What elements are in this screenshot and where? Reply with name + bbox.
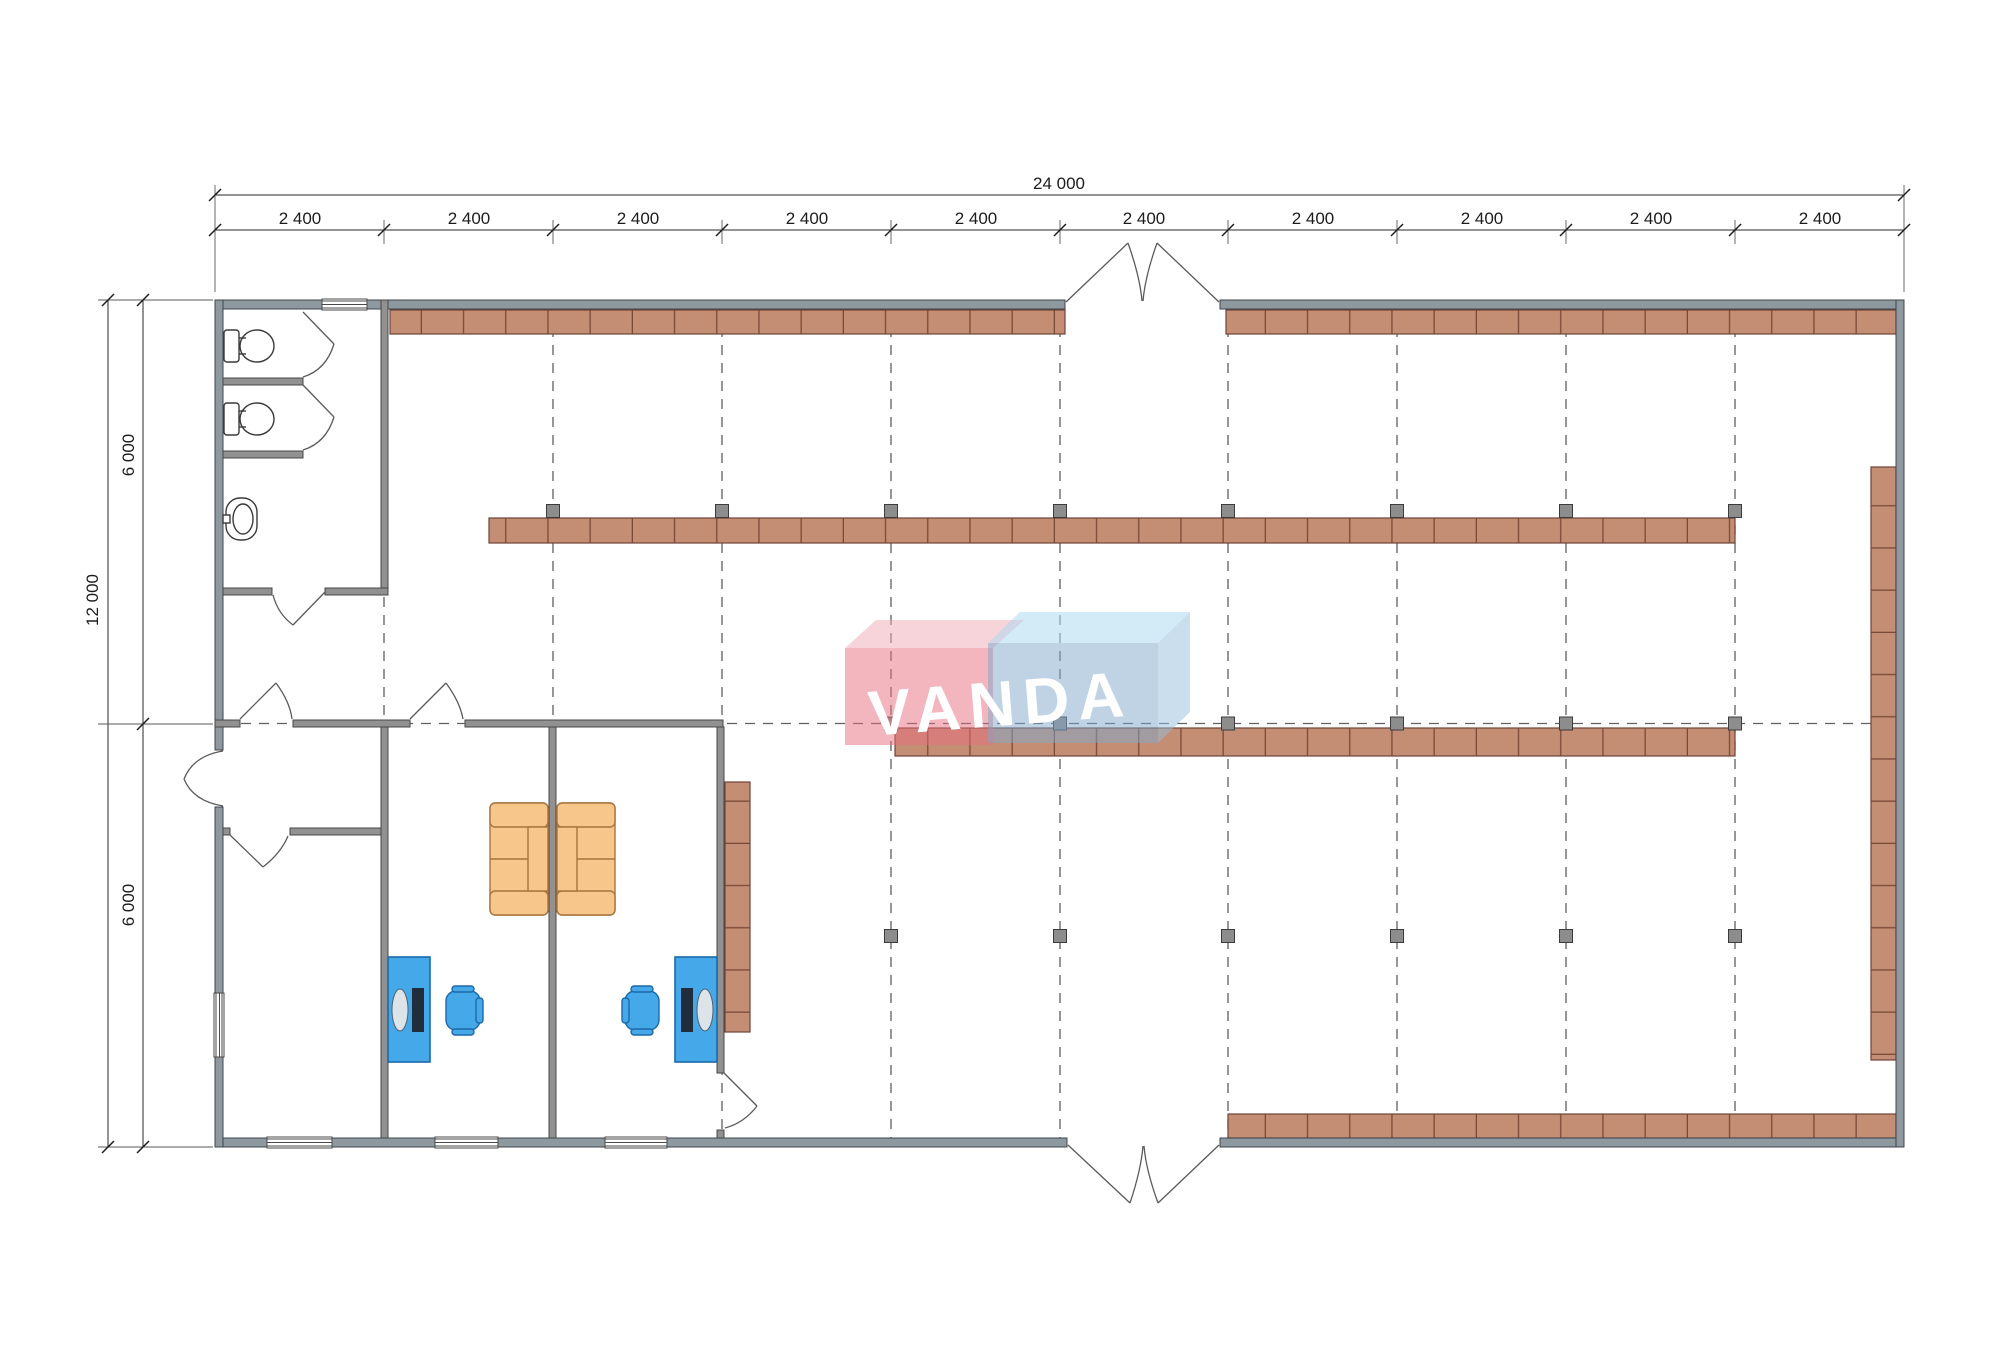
window-top-bathroom <box>322 299 367 310</box>
dim-seg-label: 2 400 <box>1461 209 1504 228</box>
chair-office1 <box>446 986 483 1035</box>
door-main-bottom-double <box>1068 1145 1219 1203</box>
dim-left-seg-label: 6 000 <box>119 884 138 927</box>
shelf-office-wall <box>725 782 750 1032</box>
wall-mid-a <box>215 720 240 727</box>
door-corridor-room <box>230 835 288 867</box>
shelf-bottom <box>1228 1114 1896 1138</box>
sink <box>223 498 257 540</box>
door-entry-left <box>184 751 223 806</box>
wall-stall-divider-1 <box>223 378 303 385</box>
door-hall-1 <box>240 683 292 719</box>
dim-seg-label: 2 400 <box>617 209 660 228</box>
dim-seg-label: 2 400 <box>1799 209 1842 228</box>
toilet-1 <box>224 330 274 362</box>
wall-office-right-a <box>717 727 724 1073</box>
window-left <box>214 993 224 1057</box>
shelf-top-left <box>390 310 1065 334</box>
dim-seg-label: 2 400 <box>279 209 322 228</box>
dim-seg-label: 2 400 <box>786 209 829 228</box>
door-washroom <box>273 592 325 625</box>
wall-mid-b <box>293 720 410 727</box>
floor-plan-drawing: 24 000 2 400 2 400 2 400 2 400 2 400 2 4… <box>0 0 2000 1358</box>
sanitary-fixtures <box>223 330 274 540</box>
wall-corridor-cap <box>223 828 230 835</box>
logo-blue-box-top <box>988 612 1190 643</box>
dimension-labels: 24 000 2 400 2 400 2 400 2 400 2 400 2 4… <box>83 174 1841 926</box>
door-stall-2 <box>303 385 334 450</box>
door-office2 <box>724 1073 757 1128</box>
computer-tower-2 <box>681 988 693 1032</box>
sofa-right <box>557 803 615 915</box>
shelf-top-right <box>1226 310 1896 334</box>
toilet-2 <box>224 403 274 435</box>
dim-seg-label: 2 400 <box>1123 209 1166 228</box>
chair-office2 <box>622 986 659 1035</box>
desk-office2 <box>675 957 717 1062</box>
dim-seg-label: 2 400 <box>955 209 998 228</box>
wall-bathroom-right <box>381 300 388 595</box>
door-hall-2 <box>410 683 463 719</box>
wall-bathroom-bottom-a <box>223 588 272 595</box>
wall-office-partition <box>549 727 556 1138</box>
monitor-1 <box>392 989 408 1031</box>
door-stall-1 <box>303 312 334 377</box>
window-bottom-3 <box>605 1137 667 1148</box>
shelf-right-wall <box>1871 467 1896 1060</box>
dim-seg-label: 2 400 <box>1630 209 1673 228</box>
shelf-row-upper <box>489 518 1735 543</box>
window-bottom-2 <box>435 1137 498 1148</box>
dim-top-total-label: 24 000 <box>1033 174 1085 193</box>
wall-mid-c <box>465 720 723 727</box>
dim-seg-label: 2 400 <box>1292 209 1335 228</box>
dim-left-total-label: 12 000 <box>83 574 102 626</box>
sofa-left <box>490 803 548 915</box>
wall-office1-left <box>381 727 388 1138</box>
window-bottom-1 <box>267 1137 332 1148</box>
vanda-logo: VANDA <box>845 612 1190 750</box>
wall-stall-divider-2 <box>223 451 303 458</box>
dim-seg-label: 2 400 <box>448 209 491 228</box>
wall-bathroom-bottom-b <box>325 588 388 595</box>
wall-office-right-b <box>717 1130 724 1138</box>
monitor-2 <box>697 989 713 1031</box>
computer-tower-1 <box>412 988 424 1032</box>
desk-office1 <box>388 957 430 1062</box>
dim-left-seg-label: 6 000 <box>119 434 138 477</box>
door-main-top-double <box>1066 243 1219 302</box>
wall-corridor <box>290 828 388 835</box>
floor-plan-page: 24 000 2 400 2 400 2 400 2 400 2 400 2 4… <box>0 0 2000 1358</box>
